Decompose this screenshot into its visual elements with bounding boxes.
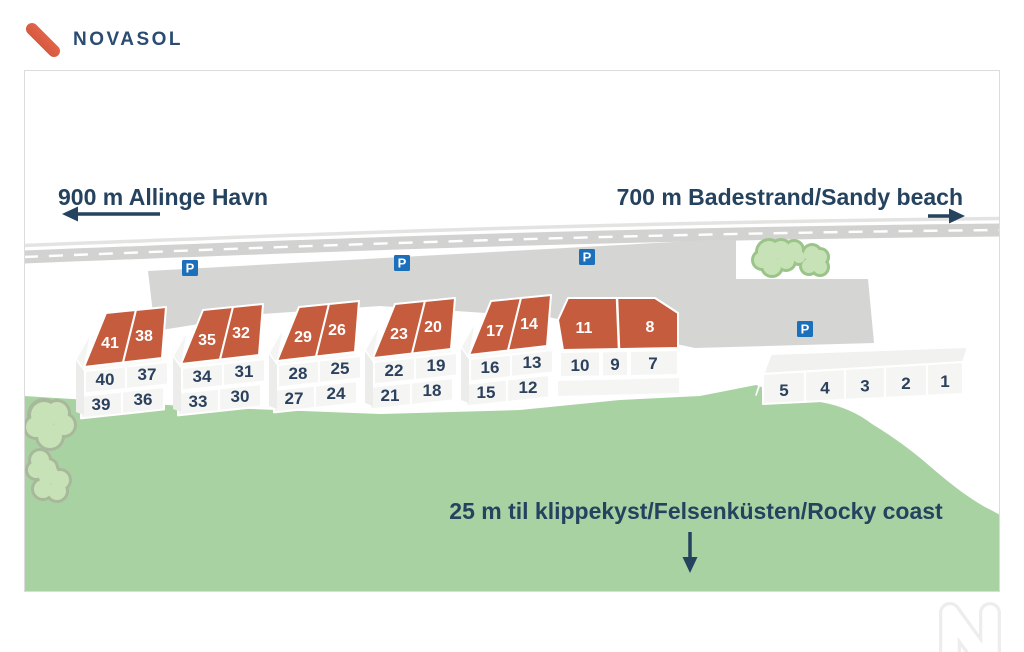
roof-unit-number: 14 <box>520 316 538 333</box>
harbor-distance-label: 900 m Allinge Havn <box>58 184 268 210</box>
roof-unit-number: 32 <box>232 325 250 342</box>
beach-distance-label: 700 m Badestrand/Sandy beach <box>617 184 963 210</box>
unit-number: 3 <box>860 377 869 396</box>
roof-unit-number: 17 <box>486 323 504 340</box>
unit-number: 12 <box>519 378 538 397</box>
roof-unit-number: 23 <box>390 326 408 343</box>
coast-distance-label: 25 m til klippekyst/Felsenküsten/Rocky c… <box>449 498 943 524</box>
unit-number: 36 <box>134 390 153 409</box>
unit-number: 28 <box>289 364 308 383</box>
facade-cell <box>557 377 680 397</box>
unit-number: 15 <box>477 383 496 402</box>
unit-number: 18 <box>423 381 442 400</box>
roof-unit-number: 20 <box>424 319 442 336</box>
novasol-logo-icon <box>24 20 62 60</box>
parking-sign-letter: P <box>398 256 407 271</box>
house-group: 11 8 10 9 7 <box>557 298 680 397</box>
roof-unit-number: 41 <box>101 335 119 352</box>
unit-number: 24 <box>327 384 346 403</box>
trees-right <box>751 238 830 278</box>
parking-sign: P <box>797 321 813 337</box>
house-group: 41 38 40 37 39 36 <box>76 307 168 418</box>
unit-number: 2 <box>901 374 910 393</box>
page: NOVASOL <box>0 0 1024 652</box>
parking-sign-letter: P <box>583 250 592 265</box>
roof-unit-number: 26 <box>328 322 346 339</box>
novasol-watermark-icon <box>926 598 1016 652</box>
unit-number: 16 <box>481 358 500 377</box>
arrow-right-icon <box>928 209 965 224</box>
unit-number: 1 <box>940 372 949 391</box>
unit-number: 25 <box>331 359 350 378</box>
unit-number: 4 <box>820 379 830 398</box>
unit-number: 30 <box>231 387 250 406</box>
brand-name: NOVASOL <box>73 29 183 51</box>
house-group: 5 4 3 2 1 <box>756 347 968 404</box>
unit-number: 22 <box>385 361 404 380</box>
unit-number: 31 <box>235 362 254 381</box>
parking-sign: P <box>182 260 198 276</box>
roof-unit-number: 35 <box>198 332 216 349</box>
roof-unit-number: 38 <box>135 328 153 345</box>
parking-sign-letter: P <box>801 322 810 337</box>
unit-number: 34 <box>193 367 212 386</box>
roof-unit-number: 11 <box>576 320 593 337</box>
unit-number: 37 <box>138 365 157 384</box>
unit-number: 21 <box>381 386 400 405</box>
parking-sign-letter: P <box>186 261 195 276</box>
unit-number: 9 <box>610 355 619 374</box>
roof-unit-number: 8 <box>646 319 655 336</box>
unit-number: 7 <box>648 354 657 373</box>
parking-sign: P <box>579 249 595 265</box>
unit-number: 19 <box>427 356 446 375</box>
house-group: 29 26 28 25 27 24 <box>269 301 361 412</box>
house-group: 23 20 22 19 21 18 <box>365 298 457 409</box>
header: NOVASOL <box>24 20 183 60</box>
unit-number: 5 <box>779 381 788 400</box>
unit-number: 13 <box>523 353 542 372</box>
roof-unit-number: 29 <box>294 329 312 346</box>
unit-number: 39 <box>92 395 111 414</box>
unit-number: 40 <box>96 370 115 389</box>
grass-area <box>24 385 1000 591</box>
unit-number: 27 <box>285 389 304 408</box>
site-map: 41 38 40 37 39 36 35 32 34 31 33 30 <box>24 70 1000 592</box>
unit-number: 10 <box>571 356 590 375</box>
parking-sign: P <box>394 255 410 271</box>
unit-number: 33 <box>189 392 208 411</box>
